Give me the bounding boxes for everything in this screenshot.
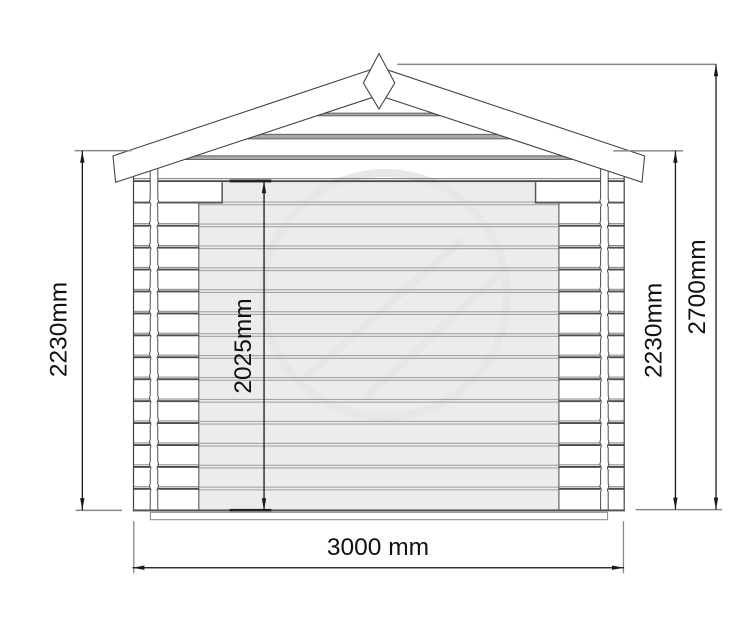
svg-text:3000 mm: 3000 mm	[327, 534, 429, 561]
svg-text:2230mm: 2230mm	[46, 282, 73, 377]
svg-text:2700mm: 2700mm	[684, 239, 711, 334]
svg-text:2025mm: 2025mm	[230, 298, 257, 393]
svg-text:2230mm: 2230mm	[641, 283, 668, 378]
